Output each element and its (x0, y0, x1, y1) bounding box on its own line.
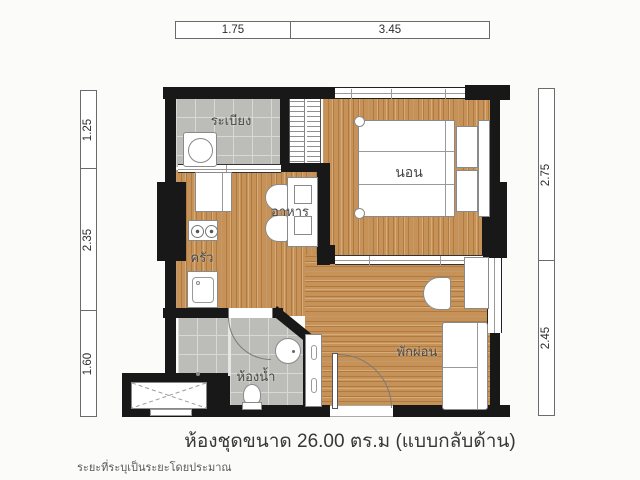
dim-right-2-value: 2.45 (541, 327, 553, 349)
bed-post (354, 208, 365, 219)
dim-left-3-value: 1.60 (83, 352, 95, 374)
dining-chair (265, 215, 288, 242)
dim-left-2: 2.35 (80, 168, 97, 311)
bed-pillow (456, 126, 478, 168)
wall-wardrobe-left (280, 87, 289, 172)
wardrobe-center-rail (304, 96, 307, 163)
dining-label: อาหาร (258, 205, 322, 218)
sofa-backrest (477, 323, 478, 409)
dim-top-1-value: 1.75 (222, 24, 244, 36)
dim-right-2: 2.45 (538, 260, 555, 416)
bed-headboard (478, 120, 490, 217)
sink-drain (196, 281, 200, 285)
wardrobe (289, 95, 321, 164)
washing-machine (183, 132, 217, 167)
window-tick (351, 89, 352, 99)
bedroom-window (335, 87, 465, 99)
living-window (487, 258, 502, 333)
window-tick (445, 89, 446, 99)
dim-left-1-value: 1.25 (83, 118, 95, 140)
wall-top-right (465, 85, 510, 100)
cabinet-handle (311, 345, 317, 360)
dim-left-1: 1.25 (80, 90, 97, 169)
counter-divider (222, 173, 223, 211)
wall-partition-stub (317, 245, 335, 264)
shoe-cabinet (305, 334, 322, 407)
bed-fold-line (359, 184, 454, 185)
toilet-tank (242, 402, 262, 410)
desk-chair (423, 277, 451, 310)
wall-right-top (490, 87, 500, 182)
wall-top-left (163, 87, 335, 99)
plan-caption: ห้องชุดขนาด 26.00 ตร.ม (แบบกลับด้าน) (120, 426, 580, 456)
sliding-door-tick (369, 256, 370, 266)
entrance-mat-cross (132, 383, 206, 408)
bathroom-label: ห้องน้ำ (221, 370, 291, 383)
entrance-mat (131, 382, 207, 409)
window-mullion (494, 258, 495, 333)
window-tick (391, 89, 392, 99)
placemat (294, 185, 312, 204)
bathroom-shower-floor (178, 316, 230, 375)
washing-machine-drum (188, 138, 213, 163)
stove-burner (205, 225, 218, 238)
kitchen-label: ครัว (177, 251, 227, 264)
dim-left-3: 1.60 (80, 310, 97, 417)
cabinet-handle (311, 378, 317, 393)
dim-left-2-value: 2.35 (83, 228, 95, 250)
dim-top-1: 1.75 (175, 21, 291, 39)
bed-post (354, 116, 365, 127)
sofa (442, 322, 488, 410)
dim-top-2: 3.45 (290, 21, 490, 39)
stove-burner (191, 225, 204, 238)
bedroom-sliding-door (335, 255, 483, 265)
kitchen-counter (195, 172, 232, 212)
dim-right-1-value: 2.75 (541, 163, 553, 185)
bathroom-basin (275, 338, 301, 364)
bed-pillow (456, 170, 478, 212)
shower-drain (196, 372, 200, 376)
sliding-door-tick (440, 256, 441, 266)
wall-right-bottom (490, 333, 500, 416)
stove (188, 220, 218, 241)
sliding-door-track (335, 260, 483, 261)
sink-basin (192, 277, 214, 303)
dim-top-2-value: 3.45 (379, 24, 401, 36)
desk (464, 257, 489, 309)
kitchen-sink (187, 271, 218, 308)
basin-drain (292, 350, 295, 353)
living-label: พักผ่อน (379, 345, 455, 358)
entrance-threshold (150, 409, 192, 416)
plan-disclaimer: ระยะที่ระบุเป็นระยะโดยประมาณ (77, 458, 377, 476)
sofa-cushion-divider (443, 367, 477, 368)
bedroom-label: นอน (379, 165, 439, 179)
wall-left-pillar (157, 182, 186, 261)
balcony-label: ระเบียง (186, 114, 276, 127)
bed-fold-line (359, 151, 454, 152)
bed-blanket-edge (445, 121, 446, 216)
sliding-door-track (178, 169, 281, 170)
dim-right-1: 2.75 (538, 88, 555, 261)
